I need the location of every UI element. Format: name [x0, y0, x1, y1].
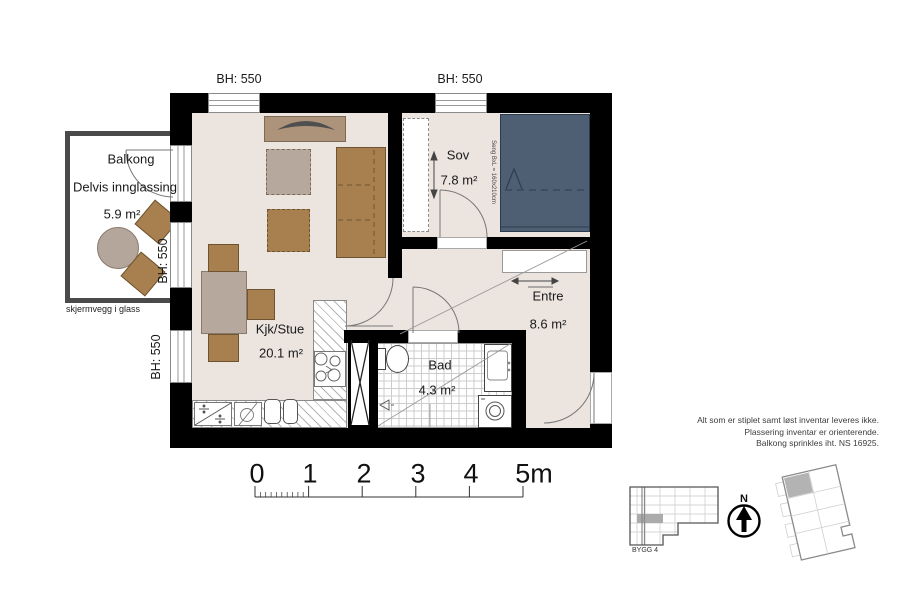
bathroom-vanity — [484, 344, 512, 392]
stove — [314, 351, 346, 387]
room-area-bedroom: 7.8 m² — [441, 173, 478, 188]
tv-bench — [264, 116, 346, 142]
bh-label-top-left: BH: 550 — [216, 72, 261, 86]
bed — [500, 114, 590, 232]
wall-bedroom-entry — [402, 237, 437, 249]
kitchen-sink-bowl — [283, 399, 298, 424]
dining-chair — [208, 334, 239, 362]
disclaimer-line: Balkong sprinkles iht. NS 16925. — [697, 438, 879, 450]
scale-tick-4: 4 — [463, 459, 478, 490]
window-living-left — [170, 330, 192, 383]
building-label: BYGG 4 — [632, 547, 658, 554]
coffee-table — [266, 149, 311, 195]
room-area-bath: 4.3 m² — [419, 383, 456, 398]
room-name-entry: Entre — [532, 289, 563, 304]
room-area-balcony: 5.9 m² — [104, 207, 141, 222]
scale-tick-0: 0 — [249, 459, 264, 490]
wall-bath-right — [512, 330, 526, 428]
dining-chair — [208, 244, 239, 272]
disclaimer-notes: Alt som er stiplet samt løst inventar le… — [697, 415, 879, 450]
toilet-tank — [377, 348, 386, 370]
window-bedroom-top — [435, 93, 487, 113]
scale-tick-5: 5m — [515, 459, 553, 490]
shaft — [348, 337, 372, 428]
room-name-balcony: Balkong — [108, 152, 155, 167]
bh-label-balcony-door: BH: 550 — [156, 238, 170, 283]
room-area-living: 20.1 m² — [259, 346, 303, 361]
scale-tick-3: 3 — [410, 459, 425, 490]
room-name-living: Kjk/Stue — [256, 322, 304, 337]
window-living-top — [208, 93, 260, 113]
scale-tick-1: 1 — [302, 459, 317, 490]
north-label: N — [740, 493, 748, 505]
room-name-bedroom: Sov — [447, 148, 469, 163]
kitchen-sink-bowl — [264, 399, 281, 424]
dining-chair — [247, 289, 275, 320]
room-name-bath: Bad — [428, 358, 451, 373]
wardrobe-bedroom — [403, 118, 429, 232]
scale-bar — [255, 486, 523, 497]
floor-plan-sheet: BH: 550 BH: 550 BH: 550 BH: 550 Balkong … — [0, 0, 900, 600]
wall-shaft-bath — [370, 337, 378, 428]
room-detail-balcony: Delvis innglassing — [73, 180, 177, 195]
wall-bottom — [170, 428, 612, 448]
toilet-bowl — [386, 345, 409, 373]
kitchen-cabinet — [234, 402, 262, 426]
wardrobe-entry — [502, 250, 587, 273]
entry-door-opening — [590, 372, 612, 424]
dishwasher — [194, 402, 232, 426]
bedroom-door-opening — [437, 237, 487, 249]
bathroom-door-opening — [408, 330, 458, 343]
wall-bedroom-entry — [487, 237, 590, 249]
window-balcony — [170, 222, 192, 288]
bh-label-top-right: BH: 550 — [437, 72, 482, 86]
scale-tick-2: 2 — [356, 459, 371, 490]
facade-locator — [627, 484, 722, 549]
washing-machine — [478, 395, 512, 428]
disclaimer-line: Alt som er stiplet samt løst inventar le… — [697, 415, 879, 427]
disclaimer-line: Plassering inventar er orienterende. — [697, 427, 879, 439]
sofa — [336, 147, 386, 258]
screen-wall-note: skjermvegg i glass — [66, 304, 140, 314]
site-plan-locator — [774, 465, 855, 562]
north-arrow-icon — [729, 506, 760, 537]
room-area-entry: 8.6 m² — [530, 317, 567, 332]
wall-living-bedroom — [388, 113, 402, 278]
bed-size-note: Seng BxL = 160x210cm — [490, 140, 496, 204]
bh-label-left-window: BH: 550 — [149, 334, 163, 379]
dining-table — [201, 271, 247, 334]
armchair — [267, 209, 310, 252]
